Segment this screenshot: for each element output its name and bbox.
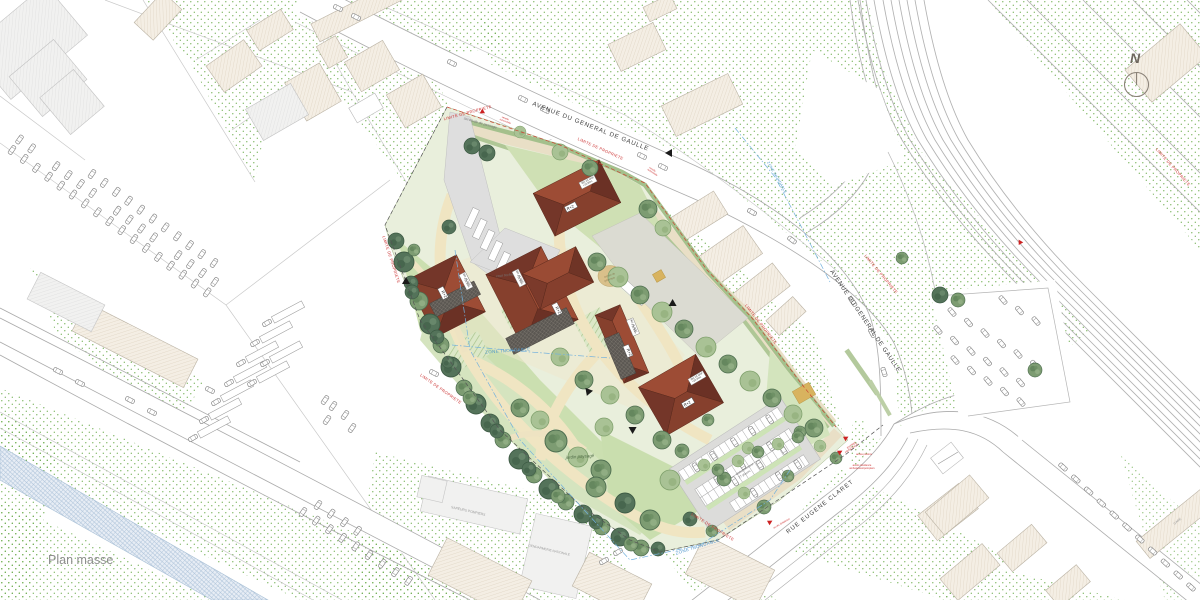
svg-text:accès piétons: accès piétons xyxy=(856,452,873,456)
svg-text:N: N xyxy=(1130,50,1141,66)
svg-text:Plan masse: Plan masse xyxy=(48,553,113,567)
svg-text:ambulances/pompiers: ambulances/pompiers xyxy=(849,466,875,470)
